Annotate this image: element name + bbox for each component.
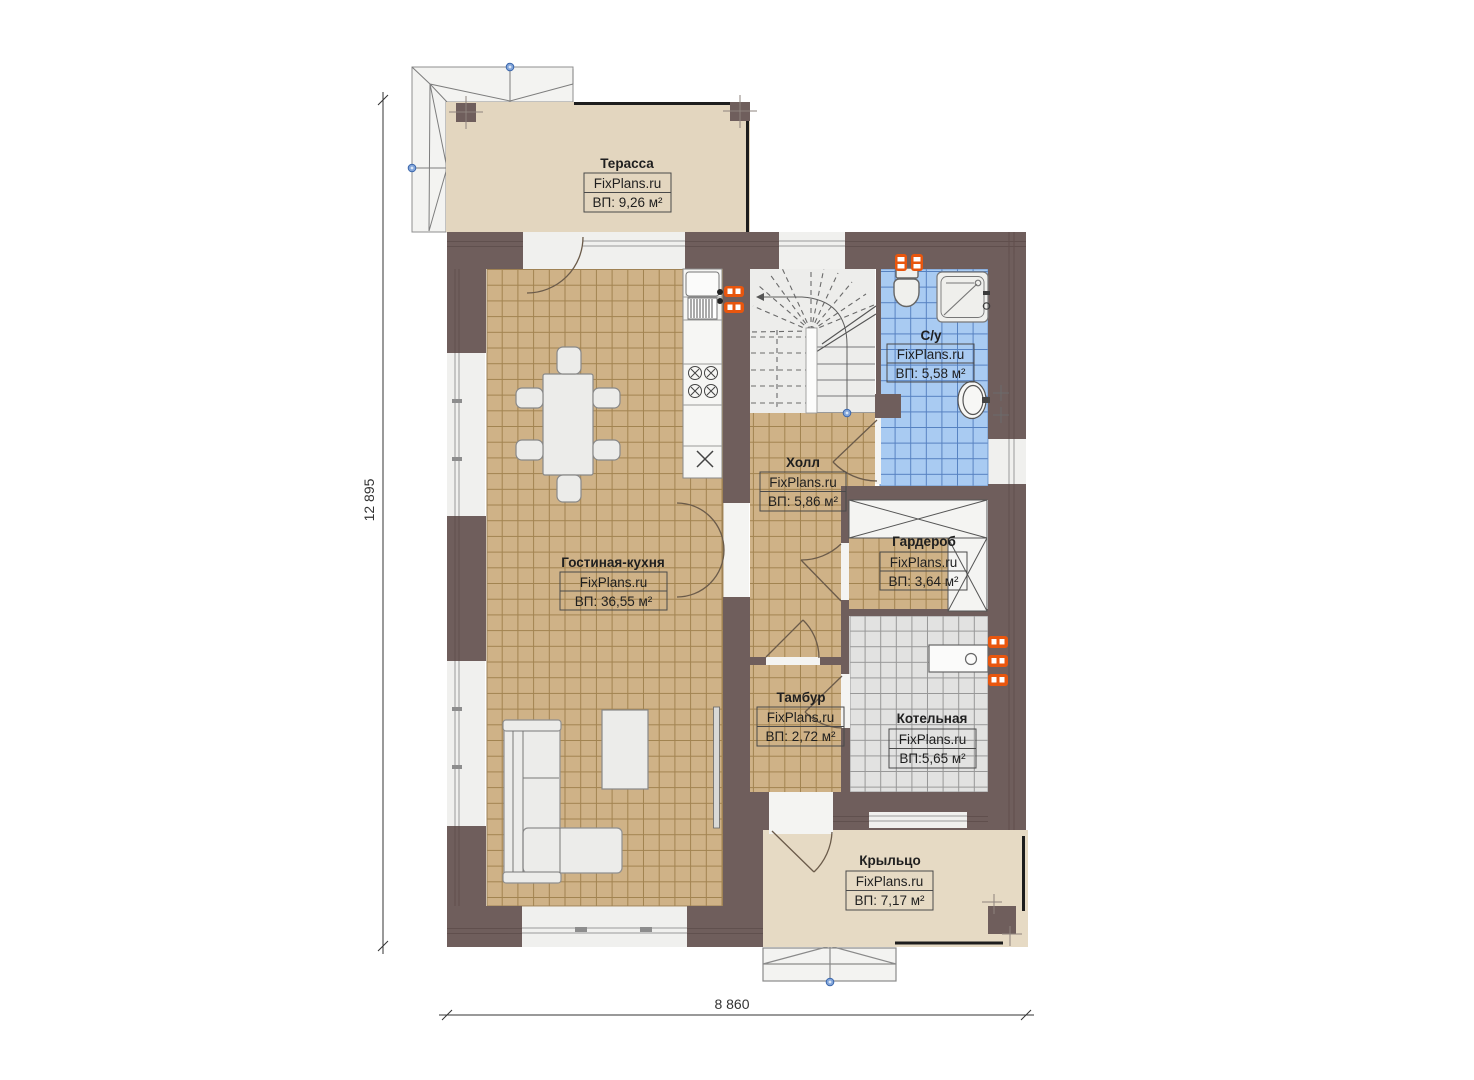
svg-text:ВП: 3,64 м²: ВП: 3,64 м² bbox=[888, 574, 959, 589]
svg-text:FixPlans.ru: FixPlans.ru bbox=[767, 710, 835, 725]
svg-text:Гардероб: Гардероб bbox=[892, 534, 956, 549]
svg-text:Котельная: Котельная bbox=[897, 711, 968, 726]
svg-text:ВП: 5,58 м²: ВП: 5,58 м² bbox=[895, 366, 966, 381]
svg-text:ВП: 36,55 м²: ВП: 36,55 м² bbox=[575, 594, 653, 609]
svg-text:ВП:5,65 м²: ВП:5,65 м² bbox=[899, 751, 966, 766]
svg-text:ВП: 9,26 м²: ВП: 9,26 м² bbox=[592, 195, 663, 210]
svg-text:ВП: 2,72 м²: ВП: 2,72 м² bbox=[765, 729, 836, 744]
svg-text:ВП: 5,86 м²: ВП: 5,86 м² bbox=[768, 494, 839, 509]
svg-text:FixPlans.ru: FixPlans.ru bbox=[890, 555, 958, 570]
svg-text:Крыльцо: Крыльцо bbox=[859, 853, 920, 868]
svg-text:12 895: 12 895 bbox=[361, 478, 377, 521]
svg-text:Гостиная-кухня: Гостиная-кухня bbox=[561, 555, 664, 570]
svg-text:Холл: Холл bbox=[786, 455, 820, 470]
svg-text:FixPlans.ru: FixPlans.ru bbox=[594, 176, 662, 191]
svg-text:FixPlans.ru: FixPlans.ru bbox=[897, 347, 965, 362]
svg-text:Терасса: Терасса bbox=[600, 156, 654, 171]
svg-text:С/у: С/у bbox=[920, 328, 942, 343]
svg-text:Тамбур: Тамбур bbox=[777, 690, 826, 705]
svg-text:FixPlans.ru: FixPlans.ru bbox=[769, 475, 837, 490]
svg-text:FixPlans.ru: FixPlans.ru bbox=[856, 874, 924, 889]
svg-text:FixPlans.ru: FixPlans.ru bbox=[899, 732, 967, 747]
svg-text:8 860: 8 860 bbox=[714, 996, 749, 1012]
svg-text:FixPlans.ru: FixPlans.ru bbox=[580, 575, 648, 590]
svg-text:ВП: 7,17 м²: ВП: 7,17 м² bbox=[854, 893, 925, 908]
